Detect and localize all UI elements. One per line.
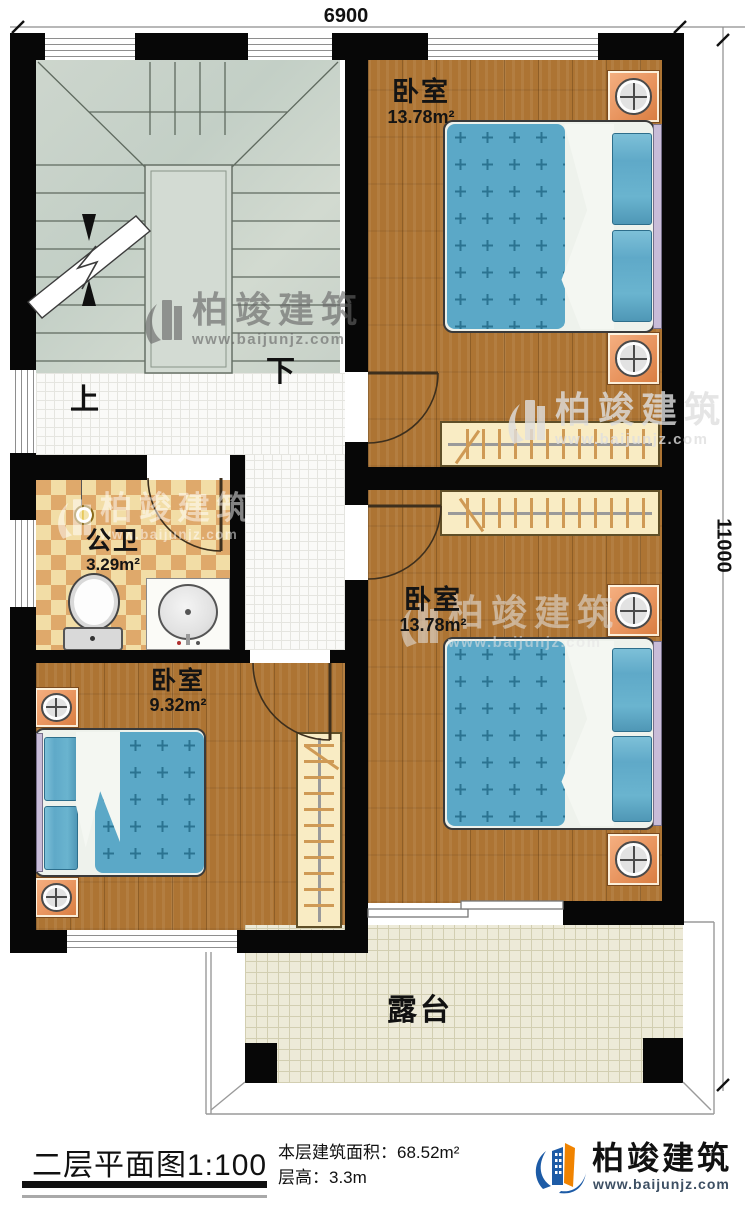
wall-exterior-left (10, 33, 36, 953)
dimension-width: 6900 (316, 5, 376, 28)
corridor-floor (245, 455, 345, 650)
brand-name: 柏竣建筑 (592, 1142, 732, 1174)
lamp-icon (41, 883, 73, 912)
pillow (612, 230, 652, 322)
room-name: 卧室 (378, 586, 488, 616)
wall-bedroom2-bottom (563, 901, 684, 925)
wardrobe-hangers (455, 429, 645, 459)
brand-logo-icon (531, 1139, 589, 1195)
floor-height-value: 3.3m (329, 1168, 367, 1187)
pillow (612, 133, 652, 225)
room-label-bedroom1: 卧室 13.78m² (366, 78, 476, 127)
wardrobe (440, 421, 660, 467)
lamp-icon (41, 693, 73, 722)
lamp-icon (615, 78, 652, 115)
wall-interior (345, 60, 368, 372)
nightstand (607, 332, 660, 385)
cold-tap-dot (196, 641, 200, 645)
pillow (612, 736, 652, 822)
nightstand (34, 877, 79, 918)
terrace-pillar (245, 1043, 277, 1083)
bed-mattress (447, 641, 565, 826)
bed-headboard (653, 124, 662, 329)
wardrobe (440, 490, 660, 536)
legend-area-row: 本层建筑面积：68.52m² (278, 1141, 459, 1166)
bed-headboard (653, 641, 662, 826)
legend-underline (22, 1181, 267, 1188)
pendant-lamp-icon (74, 505, 94, 525)
wall-bathroom-top (36, 455, 147, 480)
dimension-height: 11000 (712, 511, 735, 581)
wall-stub (330, 650, 345, 663)
wall-interior (345, 580, 368, 903)
room-area: 13.78m² (378, 616, 488, 636)
terrace-pillar (643, 1038, 683, 1083)
nightstand (607, 833, 660, 886)
lamp-icon (615, 592, 652, 629)
wall-bedroom3-top (36, 650, 250, 663)
room-name: 卧室 (128, 668, 228, 696)
legend-height-row: 层高：3.3m (278, 1166, 459, 1191)
pillow (44, 806, 78, 870)
wall-interior (345, 442, 368, 505)
room-label-bedroom3: 卧室 9.32m² (128, 668, 228, 715)
wall-exterior-right (662, 33, 684, 923)
bed-headboard (36, 733, 43, 872)
sliding-door (368, 901, 563, 917)
room-name: 公卫 (63, 528, 163, 556)
floor-height-label: 层高： (278, 1168, 329, 1187)
bed-mattress (447, 124, 565, 329)
legend-underline-thin (22, 1195, 267, 1198)
room-area: 9.32m² (128, 696, 228, 716)
stair-up-label: 上 (70, 376, 99, 418)
window (45, 33, 135, 60)
hot-tap-dot (177, 641, 181, 645)
brand-url: www.baijunjz.com (593, 1176, 730, 1192)
room-label-terrace: 露台 (387, 985, 453, 1029)
wall-bathroom-right (230, 455, 245, 663)
nightstand (34, 687, 79, 728)
wall-interior-bedroom-divider (368, 467, 662, 490)
floor-plan-canvas: 柏竣建筑 www.baijunjz.com 柏竣建筑 www.baijunjz.… (0, 0, 750, 1207)
brand-logo-svg (531, 1139, 589, 1195)
pillow (612, 648, 652, 732)
pillow (44, 737, 78, 801)
window (67, 930, 237, 953)
stair-down-label: 下 (266, 348, 295, 390)
window (248, 33, 332, 60)
toilet-icon (68, 573, 120, 631)
wall-junction (345, 903, 368, 953)
window (10, 520, 36, 607)
pendant-lamp-cord (81, 480, 82, 508)
stairwell-floor (36, 60, 340, 373)
legend-info: 本层建筑面积：68.52m² 层高：3.3m (278, 1141, 459, 1190)
plan-scale: 1:100 (187, 1149, 267, 1182)
toilet-flush-button (90, 636, 95, 641)
nightstand (607, 70, 660, 123)
room-name: 卧室 (366, 78, 476, 108)
window (428, 33, 598, 60)
legend-title: 二层平面图1:100 (32, 1140, 267, 1184)
area-label: 本层建筑面积： (278, 1143, 397, 1162)
area-value: 68.52m² (397, 1143, 459, 1162)
nightstand (607, 584, 660, 637)
lamp-icon (615, 340, 652, 377)
sink-drain (185, 609, 191, 615)
wardrobe (296, 732, 342, 928)
room-area: 3.29m² (63, 556, 163, 575)
room-label-bedroom2: 卧室 13.78m² (378, 586, 488, 635)
faucet-icon (186, 634, 190, 645)
room-area: 13.78m² (366, 108, 476, 128)
room-label-bathroom: 公卫 3.29m² (63, 528, 163, 574)
wardrobe-hangers (304, 742, 334, 919)
wardrobe-hangers (455, 498, 645, 528)
lamp-icon (615, 841, 652, 878)
plan-title: 二层平面图 (32, 1149, 187, 1182)
window (10, 370, 36, 453)
